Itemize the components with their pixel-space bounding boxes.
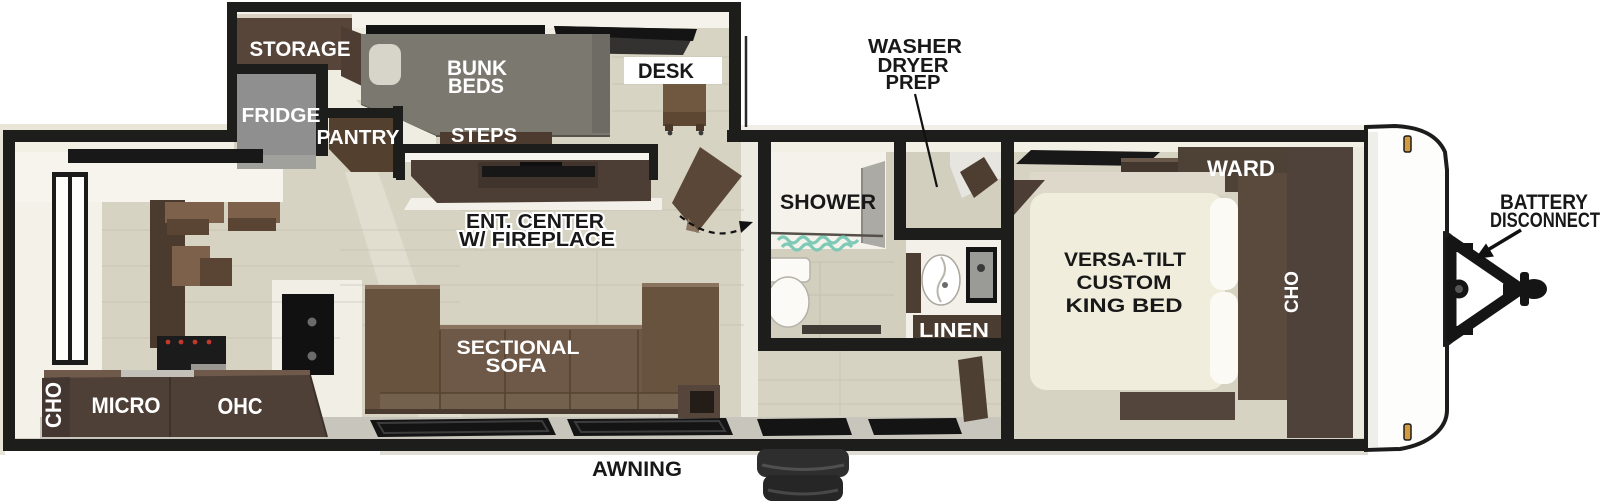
svg-text:FRIDGE: FRIDGE [242,105,321,127]
svg-text:AWNING: AWNING [592,458,682,481]
svg-text:KING BED: KING BED [1066,295,1183,317]
svg-text:DESK: DESK [638,60,694,83]
svg-text:WARD: WARD [1207,156,1275,181]
svg-text:CHO: CHO [41,382,66,428]
svg-text:LINEN: LINEN [919,320,989,342]
svg-text:OHC: OHC [218,393,263,419]
svg-text:VERSA-TILT: VERSA-TILT [1064,249,1186,271]
svg-text:BEDS: BEDS [448,75,504,98]
svg-text:SOFA: SOFA [486,355,547,377]
svg-text:STORAGE: STORAGE [250,38,351,61]
svg-text:W/ FIREPLACE: W/ FIREPLACE [459,229,615,251]
svg-text:MICRO: MICRO [92,393,161,418]
svg-text:CUSTOM: CUSTOM [1077,272,1172,294]
svg-text:CHO: CHO [1282,271,1303,313]
svg-text:PANTRY: PANTRY [317,127,401,149]
svg-text:SHOWER: SHOWER [780,191,876,214]
svg-text:PREP: PREP [886,71,941,94]
svg-text:STEPS: STEPS [451,125,517,147]
svg-text:DISCONNECT: DISCONNECT [1490,208,1600,232]
